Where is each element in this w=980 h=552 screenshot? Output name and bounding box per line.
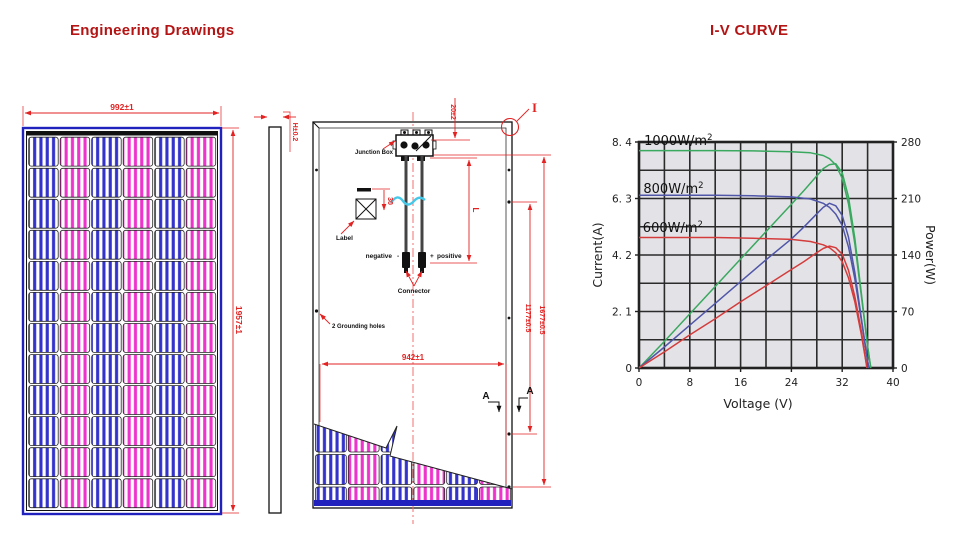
junction-box	[393, 130, 436, 161]
solar-cell	[29, 137, 59, 166]
solar-cell	[186, 168, 216, 197]
y-axis-left-title: Current(A)	[590, 222, 605, 287]
irradiance-label: 1000W/m2	[644, 133, 712, 149]
solar-cell	[123, 479, 153, 508]
top-offset-dimension: 20±2	[449, 104, 456, 120]
right-tick-label: 210	[901, 193, 921, 205]
solar-cell	[186, 230, 216, 259]
section-marker-left: A	[482, 391, 489, 402]
detail-marker-label: I	[532, 100, 537, 115]
solar-cell	[123, 292, 153, 321]
plus-sign: +	[430, 253, 434, 260]
solar-cell	[29, 417, 59, 446]
engineering-drawings: 992±1 1957±1 H±0.2	[0, 0, 580, 552]
right-tick-label: 70	[901, 306, 914, 318]
right-tick-label: 0	[901, 363, 908, 375]
solar-cell	[92, 199, 122, 228]
x-axis-title: Voltage (V)	[723, 396, 792, 411]
label-plate	[356, 199, 376, 219]
solar-cell	[186, 479, 216, 508]
solar-cell	[123, 261, 153, 290]
solar-cell	[60, 479, 89, 508]
solar-cell	[60, 199, 89, 228]
solar-cell	[155, 324, 185, 353]
left-tick-label: 0	[625, 363, 632, 375]
solar-cell	[123, 324, 153, 353]
solar-cell	[186, 386, 216, 415]
solar-cell	[60, 230, 89, 259]
solar-cell	[29, 324, 59, 353]
minus-sign: -	[397, 253, 399, 260]
positive-label: positive	[437, 253, 462, 260]
solar-cell	[155, 230, 185, 259]
x-tick-label: 8	[686, 377, 693, 389]
solar-cell	[155, 448, 185, 477]
x-tick-label: 40	[886, 377, 899, 389]
junction-box-label: Junction Box	[355, 150, 394, 156]
solar-cell	[155, 479, 185, 508]
front-width-dimension: 992±1	[110, 102, 134, 112]
back-view: I Junction Box	[313, 98, 551, 524]
left-tick-label: 4. 2	[612, 250, 632, 262]
solar-cell	[155, 417, 185, 446]
front-view: 992±1 1957±1	[23, 102, 244, 514]
solar-cell	[123, 355, 153, 384]
left-tick-label: 2. 1	[612, 306, 632, 318]
right-tick-label: 280	[901, 137, 921, 149]
solar-cell	[60, 168, 89, 197]
label-annotation: Label	[336, 235, 353, 242]
solar-cell	[155, 355, 185, 384]
solar-cell	[155, 168, 185, 197]
solar-cell	[92, 355, 122, 384]
grounding-holes-label: 2 Grounding holes	[332, 324, 386, 330]
solar-cell	[123, 168, 153, 197]
solar-cell	[92, 292, 122, 321]
solar-cell	[92, 230, 122, 259]
bottom-width-dimension: 942±1	[402, 353, 425, 362]
solar-cell	[186, 355, 216, 384]
solar-cell	[60, 324, 89, 353]
solar-cell	[60, 386, 89, 415]
irradiance-label: 800W/m2	[643, 181, 703, 197]
solar-cell	[92, 261, 122, 290]
solar-cell	[186, 137, 216, 166]
solar-cell	[186, 417, 216, 446]
solar-cell	[92, 448, 122, 477]
chart-curve-labels: 1000W/m2800W/m2600W/m2	[643, 133, 713, 236]
negative-label: negative	[366, 253, 393, 260]
solar-cell	[92, 137, 122, 166]
solar-cell	[60, 137, 89, 166]
right-tick-label: 140	[901, 250, 921, 262]
solar-cell	[186, 292, 216, 321]
solar-cell	[123, 386, 153, 415]
solar-cell	[29, 292, 59, 321]
x-tick-label: 16	[734, 377, 748, 389]
outer-height-dimension: 1677±0.5	[538, 305, 545, 334]
solar-cell	[92, 479, 122, 508]
solar-cell	[155, 292, 185, 321]
page: Engineering Drawings I-V CURVE	[0, 0, 980, 552]
front-height-dimension: 1957±1	[234, 306, 244, 335]
solar-cell	[60, 448, 89, 477]
solar-cell	[155, 261, 185, 290]
left-tick-label: 8. 4	[612, 137, 632, 149]
x-tick-label: 32	[836, 377, 849, 389]
connector-label: Connector	[398, 288, 431, 295]
solar-cell	[186, 261, 216, 290]
solar-cell	[123, 199, 153, 228]
solar-cell	[60, 261, 89, 290]
solar-cell	[29, 230, 59, 259]
barcode-mark	[357, 188, 371, 192]
solar-cell	[348, 455, 379, 485]
label-offset-dimension: 30	[386, 197, 393, 205]
solar-cell	[29, 448, 59, 477]
solar-cell	[92, 168, 122, 197]
solar-cell	[316, 455, 347, 485]
wedge-bottom-frame	[314, 500, 511, 506]
section-marker-right: A	[526, 386, 533, 397]
solar-cell	[92, 417, 122, 446]
solar-cell	[123, 448, 153, 477]
side-panel-profile	[269, 127, 281, 513]
x-tick-label: 0	[636, 377, 643, 389]
chart-grid	[639, 142, 893, 368]
irradiance-label: 600W/m2	[643, 220, 703, 236]
iv-curve-chart: 8. 46. 34. 22. 102802101407000816243240 …	[580, 100, 980, 430]
solar-cell	[123, 230, 153, 259]
solar-cell	[29, 261, 59, 290]
solar-cell	[123, 417, 153, 446]
solar-cell	[29, 386, 59, 415]
solar-cell	[29, 479, 59, 508]
solar-cell	[186, 199, 216, 228]
solar-cell	[186, 324, 216, 353]
side-view: H±0.2	[254, 112, 298, 513]
solar-cell	[60, 292, 89, 321]
solar-cell	[60, 417, 89, 446]
solar-cell	[29, 355, 59, 384]
solar-cell	[29, 199, 59, 228]
front-panel-top-bar	[27, 132, 217, 136]
solar-cell	[155, 137, 185, 166]
solar-cell	[155, 199, 185, 228]
x-tick-label: 24	[785, 377, 799, 389]
solar-cell	[123, 137, 153, 166]
iv-curve-title: I-V CURVE	[710, 22, 788, 39]
solar-cell	[186, 448, 216, 477]
solar-cell	[92, 324, 122, 353]
left-tick-label: 6. 3	[612, 193, 632, 205]
solar-cell	[29, 168, 59, 197]
cable-length-dimension: L	[471, 208, 480, 213]
side-thickness-dimension: H±0.2	[291, 123, 298, 142]
inner-height-dimension: 1177±0.5	[524, 304, 531, 333]
solar-cell	[92, 386, 122, 415]
solar-cell	[60, 355, 89, 384]
y-axis-right-title: Power(W)	[923, 225, 938, 285]
solar-cell	[155, 386, 185, 415]
